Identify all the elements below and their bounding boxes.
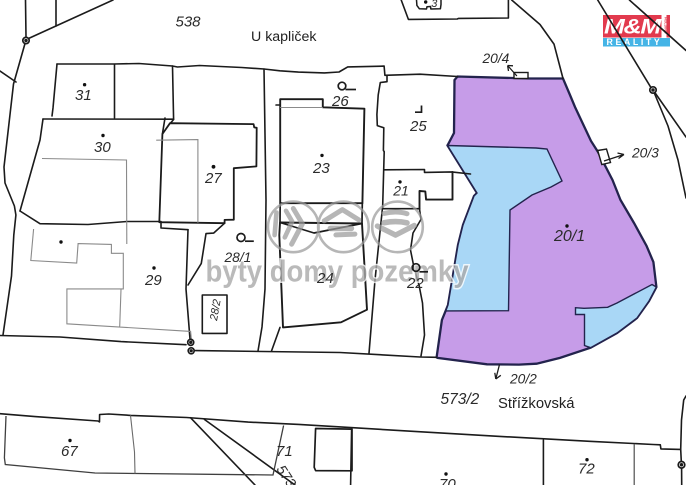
svg-text:U kapliček: U kapliček <box>251 29 317 45</box>
svg-text:21: 21 <box>392 183 409 199</box>
svg-text:25: 25 <box>409 118 427 135</box>
svg-text:3: 3 <box>431 0 438 10</box>
svg-text:20/2: 20/2 <box>509 372 537 387</box>
svg-text:REALITY: REALITY <box>607 37 663 47</box>
svg-text:20/3: 20/3 <box>631 146 659 161</box>
svg-text:67: 67 <box>61 443 78 460</box>
svg-text:26: 26 <box>331 93 349 110</box>
svg-text:71: 71 <box>276 443 293 460</box>
svg-text:Střížkovská: Střížkovská <box>498 396 575 412</box>
svg-text:30: 30 <box>94 139 111 156</box>
svg-text:28/1: 28/1 <box>224 250 252 265</box>
svg-text:23: 23 <box>312 160 330 177</box>
svg-text:29: 29 <box>144 272 162 289</box>
svg-text:M&M: M&M <box>604 16 662 39</box>
svg-text:538: 538 <box>176 14 202 31</box>
svg-text:72: 72 <box>578 461 595 478</box>
svg-text:573/2: 573/2 <box>441 391 480 408</box>
svg-text:22: 22 <box>406 275 424 292</box>
svg-text:24: 24 <box>316 270 334 287</box>
svg-text:70: 70 <box>439 476 456 485</box>
svg-text:20/1: 20/1 <box>553 228 585 245</box>
svg-text:27: 27 <box>204 170 222 187</box>
svg-text:20/4: 20/4 <box>482 51 510 66</box>
svg-text:31: 31 <box>75 87 92 104</box>
